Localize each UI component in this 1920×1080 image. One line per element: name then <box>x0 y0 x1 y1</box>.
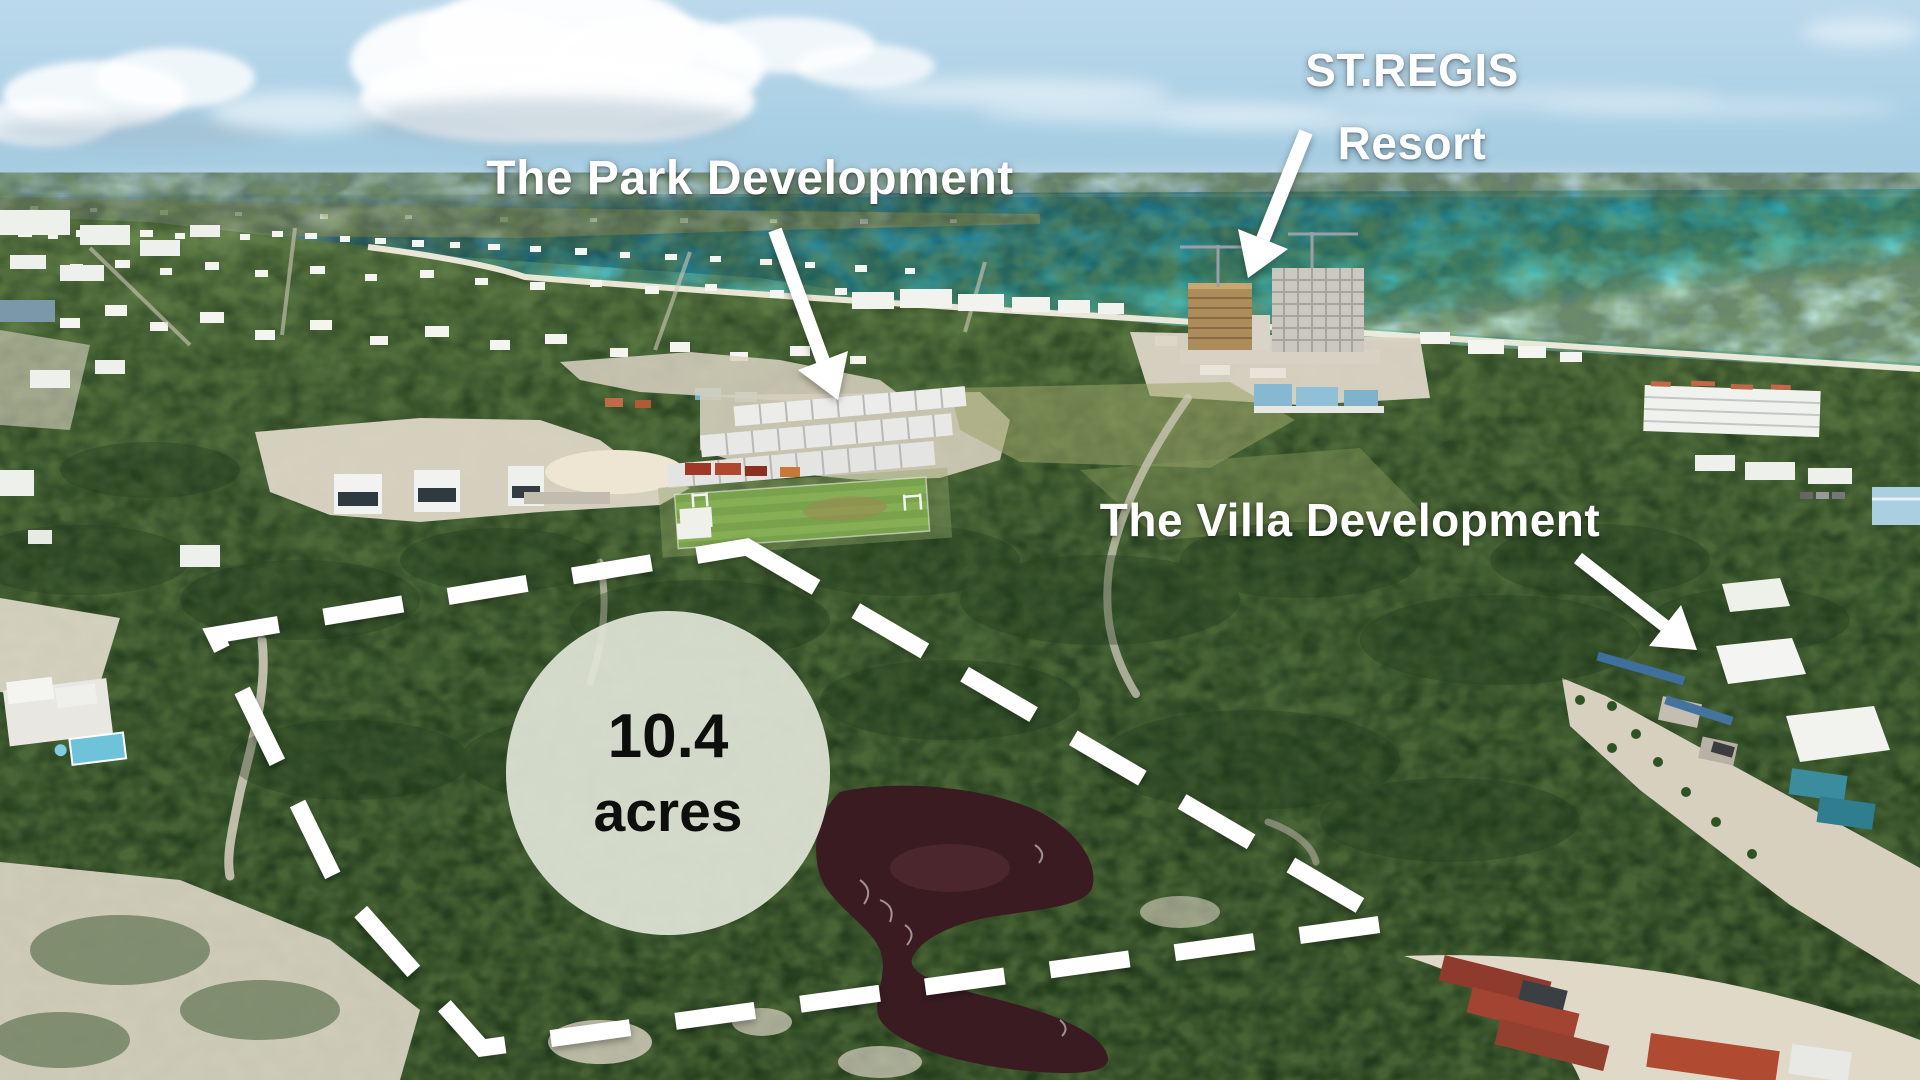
acreage-value: 10.4 <box>608 706 729 768</box>
stregis-resort-label: ST.REGIS Resort <box>1262 34 1562 179</box>
acreage-unit: acres <box>594 784 743 841</box>
stregis-resort-label-line2: Resort <box>1262 107 1562 180</box>
stregis-resort-label-line1: ST.REGIS <box>1262 34 1562 107</box>
park-development-label: The Park Development <box>420 149 1080 209</box>
swimming-pool <box>69 732 126 764</box>
acreage-badge: 10.4 acres <box>506 611 830 935</box>
annotated-aerial-photo: The Park Development ST.REGIS Resort The… <box>0 0 1920 1080</box>
villa-development-label: The Villa Development <box>1040 492 1660 550</box>
